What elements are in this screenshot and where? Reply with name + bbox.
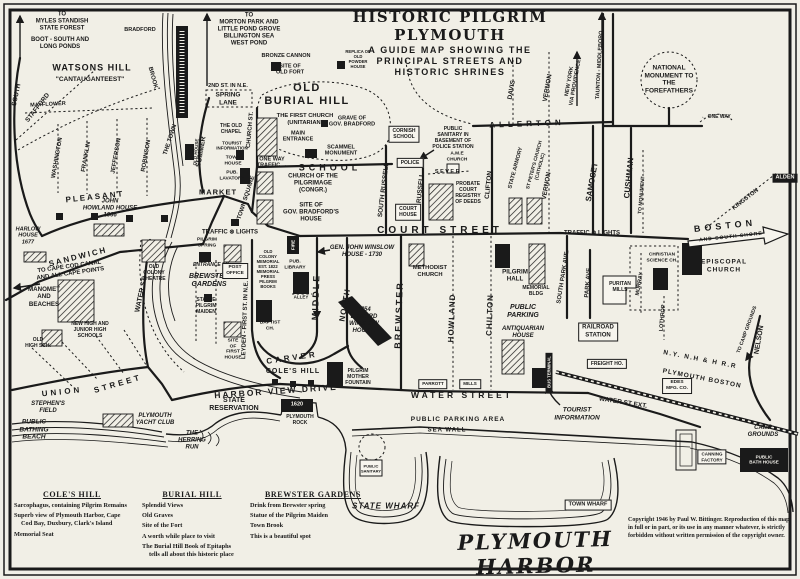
tourist-information: TOURIST INFORMATION (554, 406, 599, 421)
sea-wall: SEA WALL (428, 427, 467, 434)
legend-item: Statue of the Pilgrim Maiden (250, 512, 376, 520)
town-wharf: TOWN WHARF (565, 500, 612, 511)
christian-science-church: CHRISTIAN SCIENCE CH. (647, 252, 678, 263)
stephens-field: STEPHEN'S FIELD (31, 401, 65, 415)
public-bath-house: PUBLIC BATH HOUSE (749, 455, 778, 466)
the-old-chapel: THE OLD CHAPEL (220, 124, 242, 136)
court-street: COURT STREET (377, 225, 503, 237)
old-colony-memorial: OLD COLONY MEMORIAL EST. 1822 MEMORIAL P… (257, 250, 280, 290)
john-howland-house: JOHN HOWLAND HOUSE 1666 (83, 198, 137, 219)
market-street: MARKET (199, 189, 237, 198)
scammel-monument: SCAMMEL MONUMENT (325, 145, 357, 158)
site-of-first-house: SITE OF FIRST HOUSE (224, 339, 241, 362)
post-office: POST OFFICE (222, 263, 248, 279)
main-entrance: MAIN ENTRANCE (283, 131, 314, 144)
legend-item: Town Brook (250, 522, 376, 530)
mills: MILLS (459, 379, 481, 389)
spring-lane: SPRING LANE (216, 91, 241, 106)
camp-grounds: CAMP GROUNDS (748, 425, 779, 439)
middle-street: MIDDLE (310, 274, 322, 321)
sever-street: SEVER (435, 169, 461, 175)
howland-street: HOWLAND (446, 293, 457, 342)
public-lavatory: PUB. LAVATORY (219, 170, 244, 181)
canning-factory: CANNING FACTORY (697, 449, 726, 464)
methodist-church: METHODIST CHURCH (413, 265, 447, 279)
legend-section-burial-hill: BURIAL HILLSplendid ViewsOld GravesSite … (142, 490, 242, 561)
alden: ALDEN (773, 174, 798, 183)
plymouth-rock: PLYMOUTH ROCK (286, 415, 314, 427)
antiquarian-house: ANTIQUARIAN HOUSE (502, 326, 544, 340)
chilton-street: CHILTON (485, 294, 496, 336)
legend-heading: BREWSTER GARDENS (250, 490, 376, 499)
legend-item: Superb view of Plymouth Harbor, Cape Cod… (14, 512, 130, 528)
second-st-in-ne: 2ND ST. IN N.E. (208, 83, 248, 89)
site-gov-bradfords-house: SITE OF GOV. BRADFORD'S HOUSE (283, 202, 339, 223)
traffic-lights-east: TRAFFIC ⊗ LIGHTS (564, 230, 620, 237)
tourist-info-town-square: TOURIST INFORMATION (216, 141, 247, 152)
public-parking-area: PUBLIC PARKING AREA (411, 416, 505, 424)
old-high-school: OLD HIGH SCH. (25, 338, 51, 350)
legend-item: The Burial Hill Book of Epitaphs tells a… (142, 543, 242, 559)
traffic-lights-west: TRAFFIC ⊗ LIGHTS (202, 229, 258, 236)
water-street: WATER STREET (411, 390, 513, 400)
parrott: PARROTT (418, 379, 447, 389)
town-house: TOWN HOUSE (224, 155, 241, 166)
cantauganteest: "CANTAUGANTEEST" (56, 76, 125, 84)
replica-old-powder-house: REPLICA OF OLD POWDER HOUSE (345, 50, 370, 70)
public-sanitary-wharf: PUBLIC SANITARY (361, 464, 381, 473)
alley: ALLEY (294, 294, 309, 299)
map-title: HISTORIC PILGRIM PLYMOUTH (312, 8, 588, 44)
plymouth-rock-1620: 1620 (288, 401, 306, 410)
public-parking: PUBLIC PARKING (507, 304, 539, 321)
legend-section-cole-s-hill: COLE'S HILLSarcophagus, containing Pilgr… (14, 490, 130, 541)
new-high-schools: NEW HIGH AND JUNIOR HIGH SCHOOLS (71, 322, 109, 340)
legend-heading: BURIAL HILL (142, 490, 242, 499)
watsons-hill: WATSONS HILL (52, 63, 131, 74)
site-of-old-fort: SITE OF OLD FORT (276, 64, 304, 77)
harbor-name: PLYMOUTH HARBOR (427, 525, 643, 579)
to-morton-park: TO MORTON PARK AND LITTLE POND GROVE BIL… (218, 12, 281, 47)
plymouth-yacht-club: PLYMOUTH YACHT CLUB (136, 413, 175, 427)
gen-john-winslow-house: GEN. JOHN WINSLOW HOUSE - 1730 (330, 245, 394, 259)
school-street: SCHOOL (299, 163, 362, 174)
edes-mfg-co: EDES MFG. CO. (662, 378, 692, 394)
boot-south-long-ponds: BOOT - SOUTH AND LONG PONDS (31, 37, 89, 51)
first-church-unitarian: THE FIRST CHURCH (UNITARIAN) (277, 113, 334, 127)
public-library: PUB. LIBRARY (284, 259, 305, 270)
cornish-school: CORNISH SCHOOL (388, 126, 419, 143)
legend-item: Old Graves (142, 512, 242, 520)
legend-item: This is a beautiful spot (250, 533, 376, 541)
memorial-bldg: MEMORIAL BLDG (522, 286, 549, 298)
plymouth-guide-map: HISTORIC PILGRIM PLYMOUTH A GUIDE MAP SH… (0, 0, 800, 579)
bradford-street: BRADFORD (124, 27, 155, 33)
bronze-cannon: BRONZE CANNON (262, 53, 311, 59)
manomet-and-beaches: MANOMET AND BEACHES (28, 286, 60, 308)
pilgrim-spring: PILGRIM SPRING (197, 237, 217, 248)
police-station: POLICE (397, 158, 424, 168)
one-way-school: ONE WAY TRAFFIC → (257, 157, 288, 170)
public-sanitary-police: PUBLIC SANITARY IN BASEMENT OF POLICE ST… (432, 127, 473, 151)
one-way-monument: ← ONE WAY (701, 115, 731, 121)
harlow-house: HARLOW HOUSE 1677 (16, 226, 41, 245)
coles-hill: COLE'S HILL (266, 368, 320, 376)
ame-church: A.M.E CHURCH (447, 151, 468, 162)
statue-pilgrim-maiden: STATUE PILGRIM MAIDEN (196, 298, 217, 316)
pilgrim-mother-fountain: PILGRIM MOTHER FOUNTAIN (345, 369, 370, 387)
old-colony-theatre: OLD COLONY THEATRE (142, 265, 165, 283)
legend-item: Site of the Fort (142, 522, 242, 530)
baptist-church: BAPTIST CH. (260, 320, 281, 331)
to-myles-standish: TO MYLES STANDISH STATE FOREST (36, 11, 89, 32)
puritan-mills: PURITAN MILLS (609, 282, 631, 294)
fire-station: FIRE (290, 240, 295, 250)
court-house: COURT HOUSE (395, 204, 421, 221)
national-monument: NATIONAL MONUMENT TO THE FOREFATHERS (645, 65, 694, 96)
probate-court-registry: PROBATE COURT REGISTRY OF DEEDS (455, 182, 481, 206)
legend-section-brewster-gardens: BREWSTER GARDENSDrink from Brewster spri… (250, 490, 376, 543)
pilgrim-hall: PILGRIM HALL (502, 269, 528, 284)
church-of-the-pilgrimage: CHURCH OF THE PILGRIMAGE (CONGR.) (288, 173, 338, 194)
legend-item: Sarcophagus, containing Pilgrim Remains (14, 502, 130, 510)
freight-house: FREIGHT HO. (587, 359, 627, 369)
legend-item: Memorial Seat (14, 531, 130, 539)
the-herring-run: THE HERRING RUN (178, 430, 206, 451)
grave-of-gov-bradford: GRAVE OF GOV. BRADFORD (329, 116, 375, 129)
railroad-station: RAILROAD STATION (578, 323, 618, 342)
episcopal-church: EPISCOPAL CHURCH (701, 258, 747, 273)
edward-winslow-house: 1754 EDWARD WINSLOW HOUSE. (349, 307, 379, 335)
legend-item: A worth while place to visit (142, 533, 242, 541)
legend-item: Splendid Views (142, 502, 242, 510)
public-bathing-beach: PUBLIC BATHING BEACH (19, 419, 48, 442)
copyright-notice: Copyright 1946 by Paul W. Bittinger. Rep… (628, 517, 792, 540)
bus-terminal: BUS TERMINAL (545, 353, 552, 391)
legend-heading: COLE'S HILL (14, 490, 130, 499)
legend-item: Drink from Brewster spring (250, 502, 376, 510)
old-burial-hill: OLD BURIAL HILL (264, 82, 349, 108)
